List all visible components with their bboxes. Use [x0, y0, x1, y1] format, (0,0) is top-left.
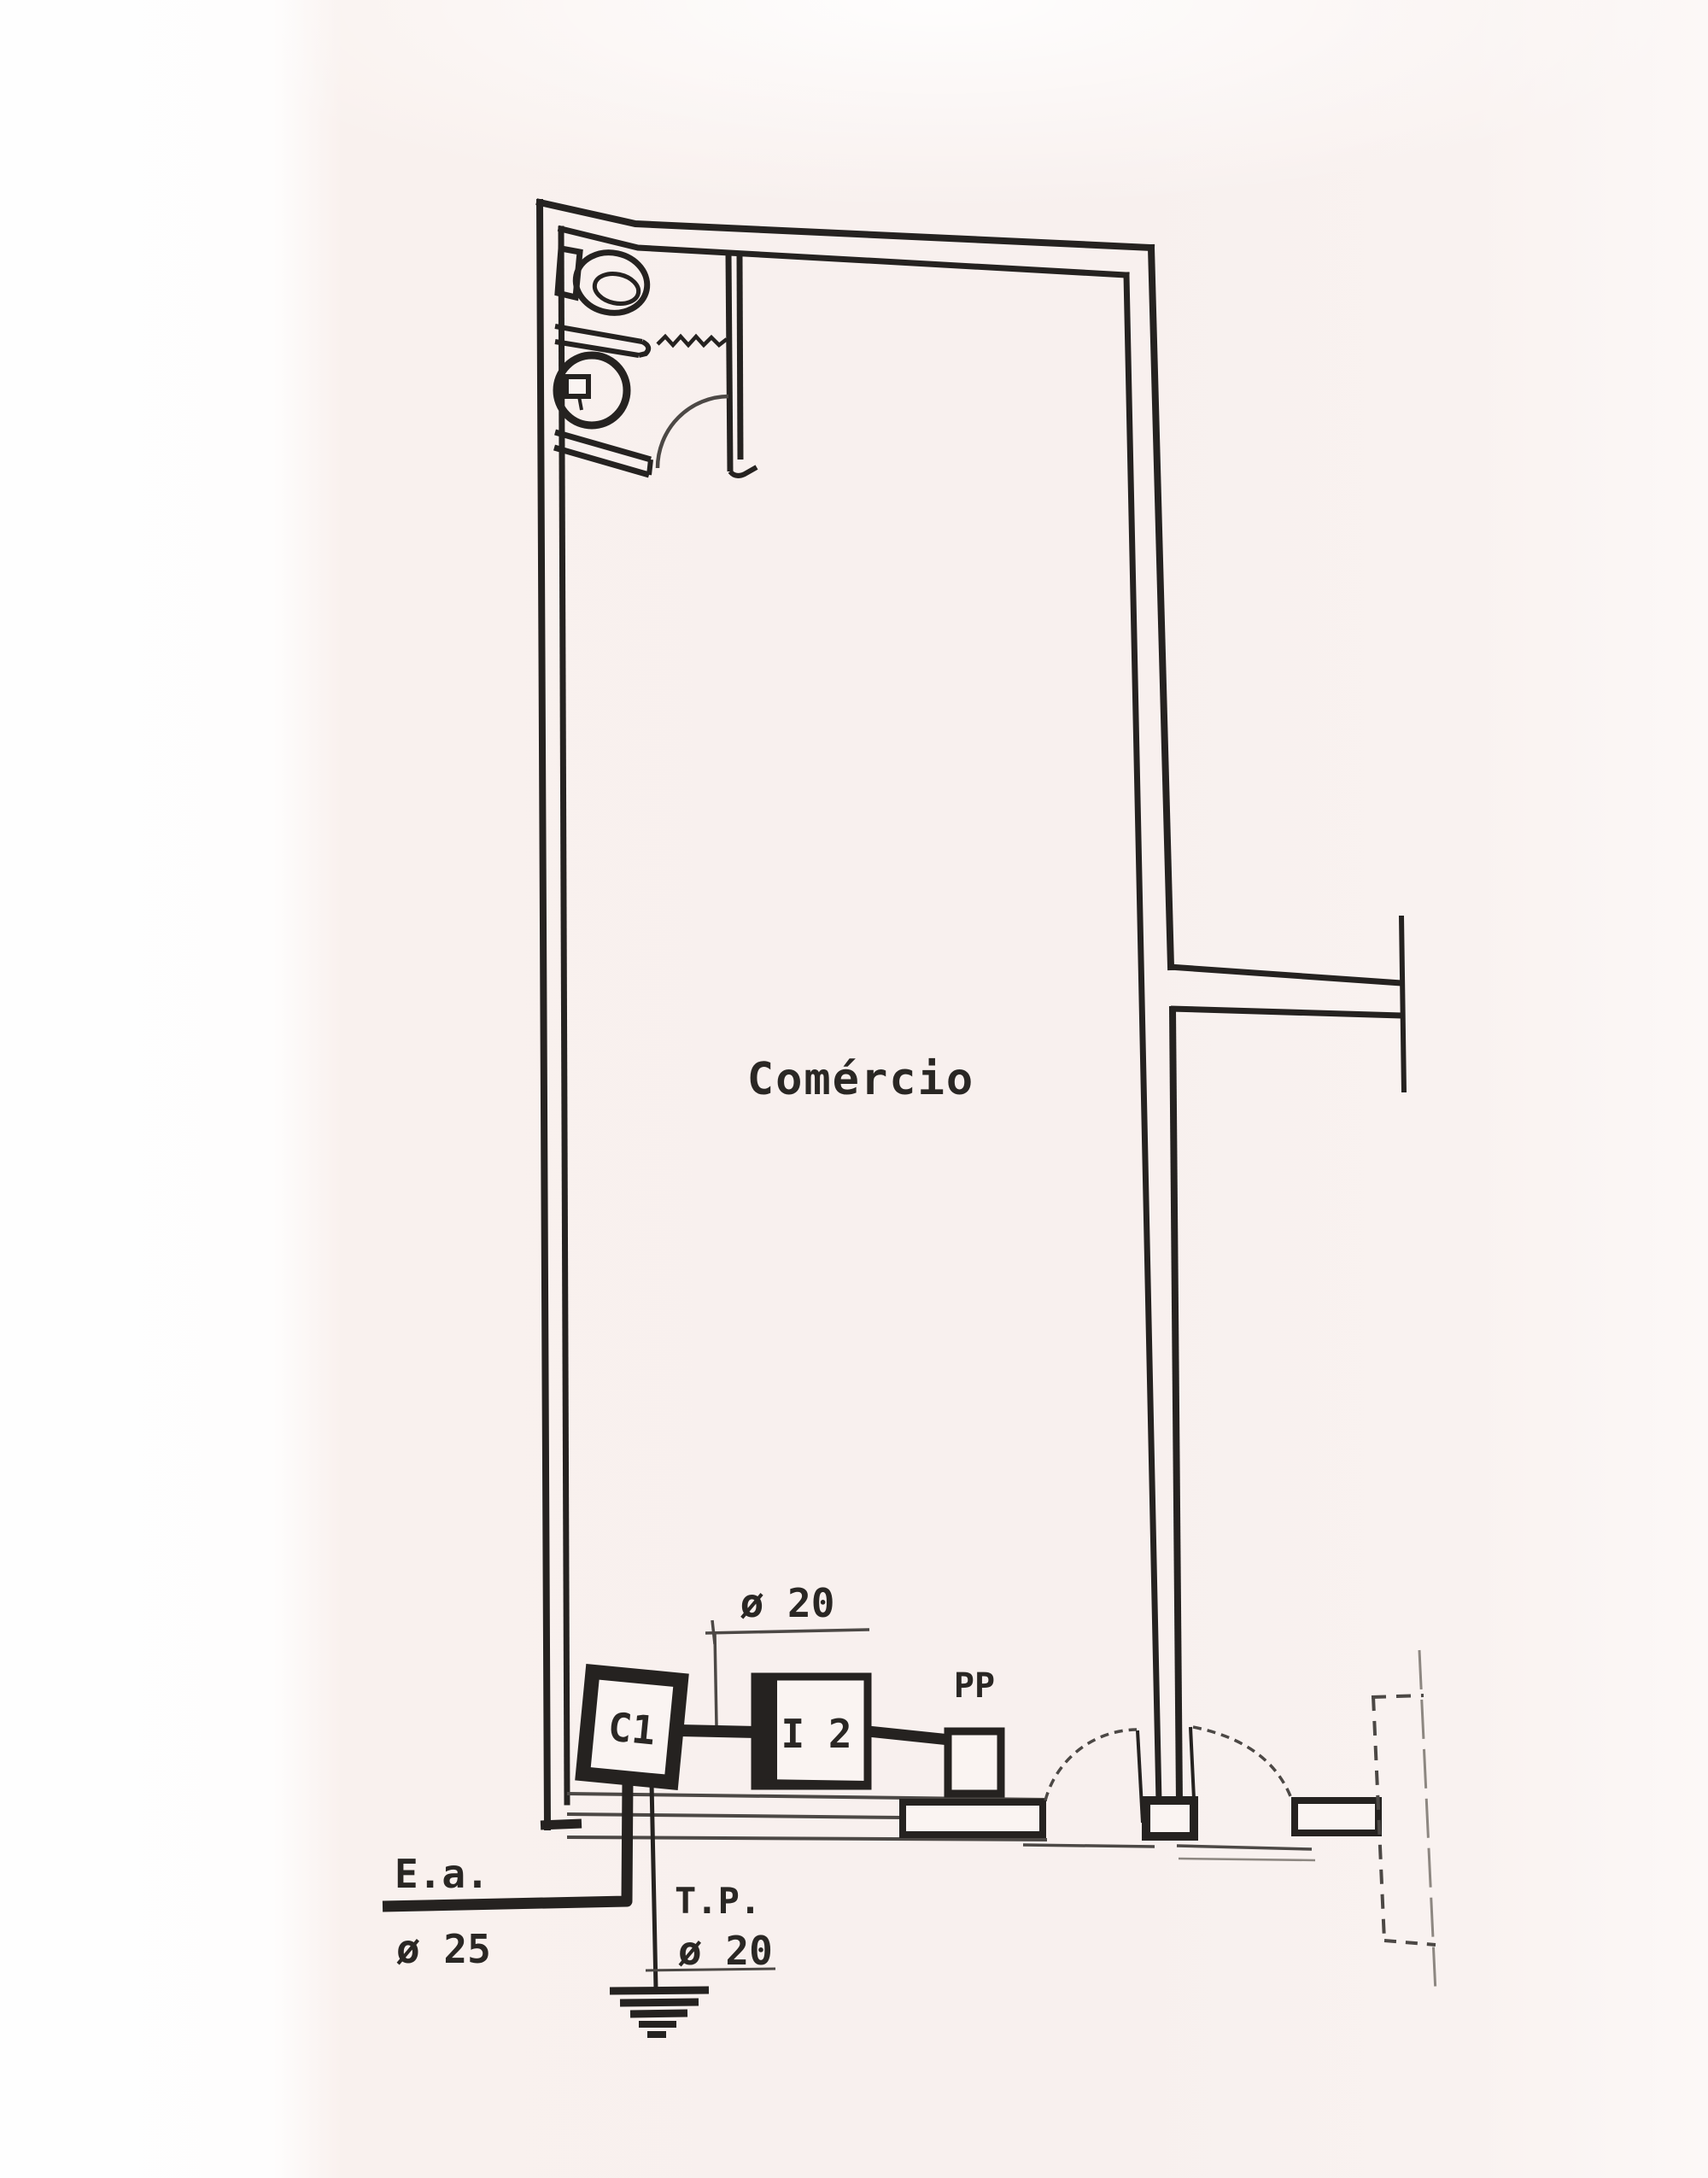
threshold-line-right-faint	[1179, 1859, 1315, 1860]
bathroom-wall-foot	[730, 467, 757, 476]
dashed-rect-top	[1372, 1695, 1424, 1697]
dim-drop-line	[715, 1633, 717, 1726]
c1-label: C1	[606, 1703, 658, 1754]
dashed-rect-bottom	[1384, 1941, 1436, 1945]
right-door-leaf	[1190, 1727, 1194, 1799]
stub-terminator-line	[1401, 916, 1404, 1092]
pp-box	[948, 1731, 1001, 1794]
tp-dim-underline	[646, 1969, 775, 1970]
pp-label: PP	[954, 1666, 995, 1706]
floor-plan-svg: Comércio ø 20 C1	[0, 0, 1708, 2178]
right-wall-inner	[1126, 275, 1159, 1802]
stub-bottom-line	[1171, 1009, 1401, 1016]
bathroom	[554, 246, 757, 476]
c1-box: C1	[582, 1672, 681, 1782]
top-dim-label: ø 20	[740, 1580, 835, 1626]
conduit-c1-i2	[680, 1730, 757, 1732]
ea-label: E.a.	[395, 1851, 489, 1897]
bathroom-right-wall-outer	[740, 255, 740, 460]
i2-box-left-band	[755, 1677, 777, 1786]
left-door-arc	[1045, 1730, 1137, 1800]
tp-dim-label: ø 20	[678, 1928, 773, 1974]
ground-bar-3	[630, 2013, 687, 2014]
threshold-line-left	[1023, 1845, 1155, 1847]
outer-walls	[540, 202, 1179, 1827]
right-wall-stub	[1169, 916, 1404, 1092]
threshold-line-right	[1177, 1846, 1312, 1849]
zigzag-curtain-line	[658, 337, 727, 345]
door-center-post	[1146, 1800, 1194, 1836]
top-wall-outer	[540, 202, 1151, 248]
left-wall-inner	[561, 229, 567, 1802]
toilet-bowl-outer	[570, 246, 653, 319]
left-wall-end-cap	[541, 1824, 582, 1825]
ground-bar-1	[610, 1990, 709, 1991]
bathroom-bottom-wall-top	[555, 432, 651, 460]
dim-line	[705, 1630, 869, 1633]
i2-label: I 2	[781, 1711, 851, 1757]
ea-dim-label: ø 25	[396, 1926, 491, 1972]
storefront	[567, 1794, 1378, 1860]
storefront-line-2	[567, 1814, 904, 1818]
wall-bar-right	[1295, 1800, 1378, 1833]
left-wall-outer	[540, 202, 547, 1827]
right-door-arc	[1193, 1727, 1292, 1800]
bathroom-door-arc	[658, 396, 728, 468]
wall-bar-left	[903, 1802, 1043, 1835]
dashed-rect-right	[1419, 1650, 1436, 1993]
ground-symbol	[610, 1990, 709, 2035]
left-door-leaf	[1138, 1730, 1143, 1823]
room-label: Comércio	[747, 1054, 974, 1105]
divider-top-line	[555, 326, 642, 342]
ground-bar-2	[620, 2002, 699, 2003]
stub-top-line	[1169, 967, 1401, 983]
scanned-floor-plan: Comércio ø 20 C1	[0, 0, 1708, 2178]
bathroom-bottom-wall-cap	[649, 460, 651, 475]
conduit-i2-pp	[868, 1731, 950, 1740]
i2-box: I 2	[755, 1677, 868, 1786]
washbasin-tap-box	[566, 377, 588, 396]
bathroom-bottom-wall-bottom	[554, 448, 649, 475]
right-wall-outer-upper	[1151, 248, 1171, 967]
bathroom-right-wall-inner	[728, 254, 730, 471]
i2-box-bottom-band	[757, 1783, 868, 1785]
right-wall-outer-lower	[1173, 1010, 1179, 1804]
toilet-bowl-inner	[592, 270, 641, 307]
tp-label: T.P.	[675, 1880, 761, 1922]
